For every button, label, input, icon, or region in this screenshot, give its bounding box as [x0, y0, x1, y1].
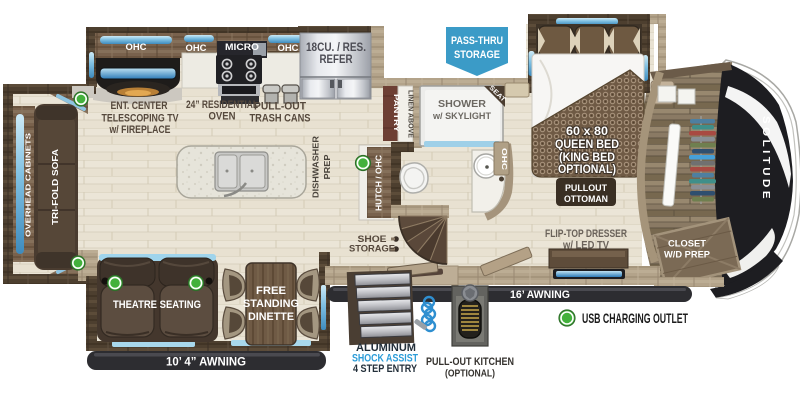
- svg-text:OHC: OHC: [278, 43, 299, 54]
- svg-text:ENT. CENTER: ENT. CENTER: [111, 100, 168, 112]
- svg-text:STORAGE: STORAGE: [349, 244, 395, 255]
- svg-text:16’ AWNING: 16’ AWNING: [510, 289, 570, 301]
- svg-text:USB CHARGING OUTLET: USB CHARGING OUTLET: [582, 310, 688, 326]
- svg-text:SOLITUDE: SOLITUDE: [760, 116, 771, 202]
- svg-text:TELESCOPING TV: TELESCOPING TV: [102, 113, 180, 125]
- svg-text:OTTOMAN: OTTOMAN: [564, 194, 608, 205]
- svg-text:FLIP-TOP DRESSER: FLIP-TOP DRESSER: [545, 228, 627, 240]
- svg-text:TRI-FOLD SOFA: TRI-FOLD SOFA: [50, 149, 60, 225]
- svg-text:CLOSET: CLOSET: [668, 239, 706, 250]
- svg-text:MICRO: MICRO: [225, 42, 259, 53]
- svg-text:PULL-OUT: PULL-OUT: [254, 101, 306, 113]
- svg-text:HUTCH / OHC: HUTCH / OHC: [375, 155, 384, 211]
- svg-text:DISHWASHER: DISHWASHER: [311, 136, 321, 198]
- svg-text:REFER: REFER: [320, 54, 354, 66]
- svg-text:STORAGE: STORAGE: [454, 49, 500, 61]
- svg-text:(OPTIONAL): (OPTIONAL): [445, 369, 495, 380]
- svg-text:OHC: OHC: [186, 43, 207, 54]
- svg-text:THEATRE SEATING: THEATRE SEATING: [113, 299, 201, 311]
- svg-text:DINETTE: DINETTE: [248, 311, 294, 323]
- svg-text:10’ 4” AWNING: 10’ 4” AWNING: [166, 355, 246, 369]
- svg-text:PULLOUT: PULLOUT: [565, 183, 607, 194]
- svg-text:TRASH CANS: TRASH CANS: [250, 113, 311, 125]
- svg-text:OHC: OHC: [126, 42, 147, 53]
- svg-text:SHOWER: SHOWER: [438, 98, 486, 110]
- svg-text:18CU. / RES.: 18CU. / RES.: [306, 42, 366, 54]
- svg-text:w/ SKYLIGHT: w/ SKYLIGHT: [432, 111, 491, 122]
- svg-text:24” RESIDENTIAL: 24” RESIDENTIAL: [186, 99, 258, 111]
- svg-text:STANDING: STANDING: [243, 298, 299, 310]
- svg-text:60 x 80: 60 x 80: [566, 124, 608, 138]
- svg-text:OHC: OHC: [500, 148, 509, 171]
- svg-text:w/ LED TV: w/ LED TV: [562, 240, 609, 252]
- svg-text:W/D PREP: W/D PREP: [664, 250, 711, 261]
- svg-text:OVERHEAD CABINETS: OVERHEAD CABINETS: [24, 133, 33, 237]
- svg-text:OPTIONAL): OPTIONAL): [558, 162, 616, 176]
- svg-text:4 STEP ENTRY: 4 STEP ENTRY: [353, 363, 418, 375]
- svg-text:PASS-THRU: PASS-THRU: [451, 35, 503, 47]
- svg-text:QUEEN BED: QUEEN BED: [555, 137, 619, 151]
- svg-text:PREP: PREP: [322, 154, 332, 179]
- svg-text:PANTRY: PANTRY: [392, 94, 401, 132]
- svg-text:LINEN ABOVE: LINEN ABOVE: [407, 90, 414, 138]
- svg-text:FREE: FREE: [256, 285, 286, 297]
- svg-text:w/ FIREPLACE: w/ FIREPLACE: [109, 124, 171, 136]
- svg-text:OVEN: OVEN: [209, 111, 236, 123]
- svg-text:PULL-OUT KITCHEN: PULL-OUT KITCHEN: [426, 356, 514, 368]
